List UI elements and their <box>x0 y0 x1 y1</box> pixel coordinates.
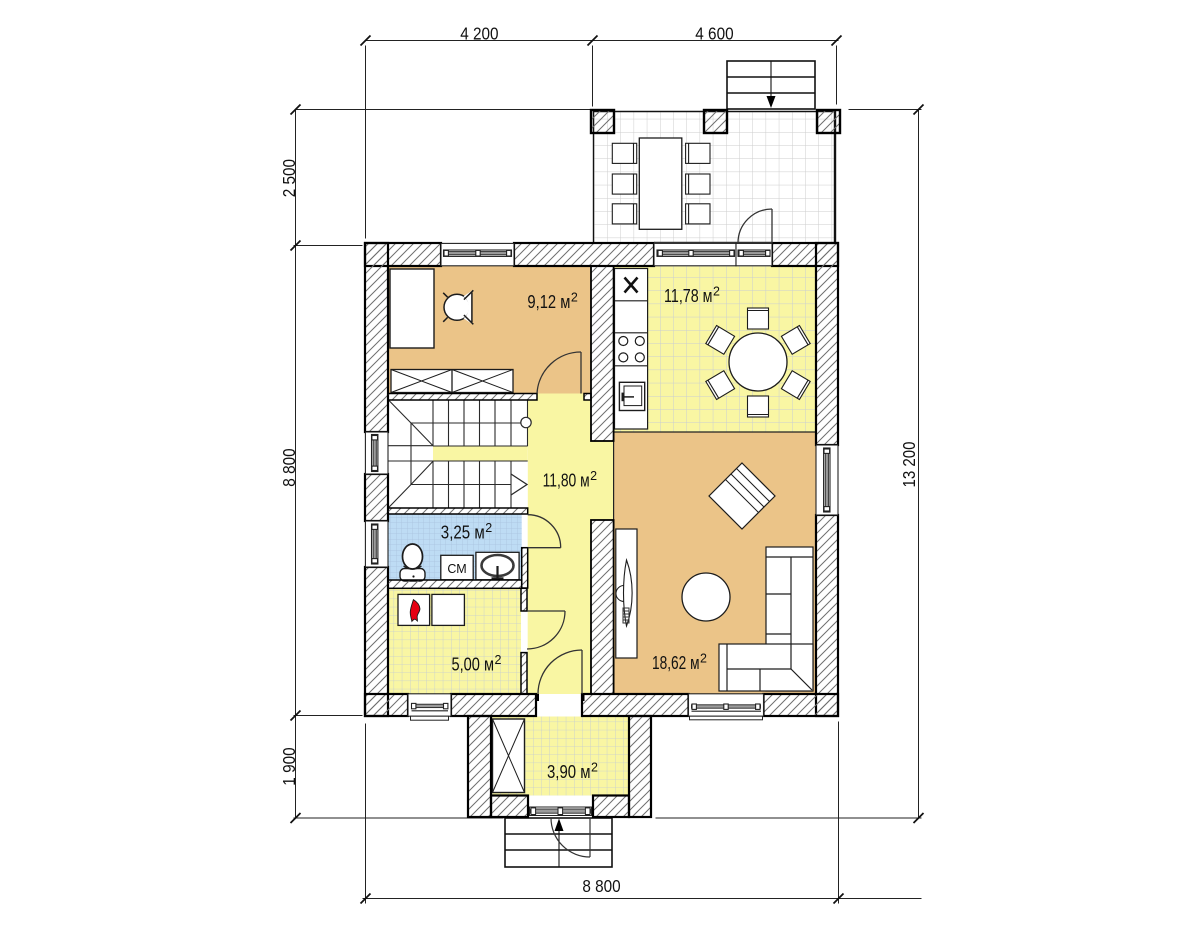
svg-text:2 500: 2 500 <box>279 159 299 198</box>
svg-text:8 800: 8 800 <box>279 448 299 487</box>
svg-text:2: 2 <box>495 653 502 667</box>
svg-text:СМ: СМ <box>447 562 466 576</box>
svg-text:5,00 м: 5,00 м <box>452 655 495 675</box>
svg-text:3,25 м: 3,25 м <box>441 523 485 543</box>
svg-text:2: 2 <box>590 469 597 483</box>
svg-text:2: 2 <box>713 285 720 299</box>
svg-text:4 600: 4 600 <box>695 24 734 44</box>
svg-text:2: 2 <box>700 652 707 666</box>
svg-text:8 800: 8 800 <box>582 876 621 896</box>
svg-text:4 200: 4 200 <box>460 24 499 44</box>
svg-text:11,78 м: 11,78 м <box>664 286 713 306</box>
svg-text:18,62 м: 18,62 м <box>652 653 700 673</box>
svg-text:3,90 м: 3,90 м <box>547 762 591 782</box>
svg-text:2: 2 <box>485 521 492 535</box>
svg-text:9,12 м: 9,12 м <box>527 292 570 312</box>
svg-text:13 200: 13 200 <box>899 441 919 487</box>
svg-text:11,80 м: 11,80 м <box>543 471 590 491</box>
svg-text:2: 2 <box>591 761 598 775</box>
svg-text:1 900: 1 900 <box>279 747 299 786</box>
svg-text:2: 2 <box>571 291 578 305</box>
